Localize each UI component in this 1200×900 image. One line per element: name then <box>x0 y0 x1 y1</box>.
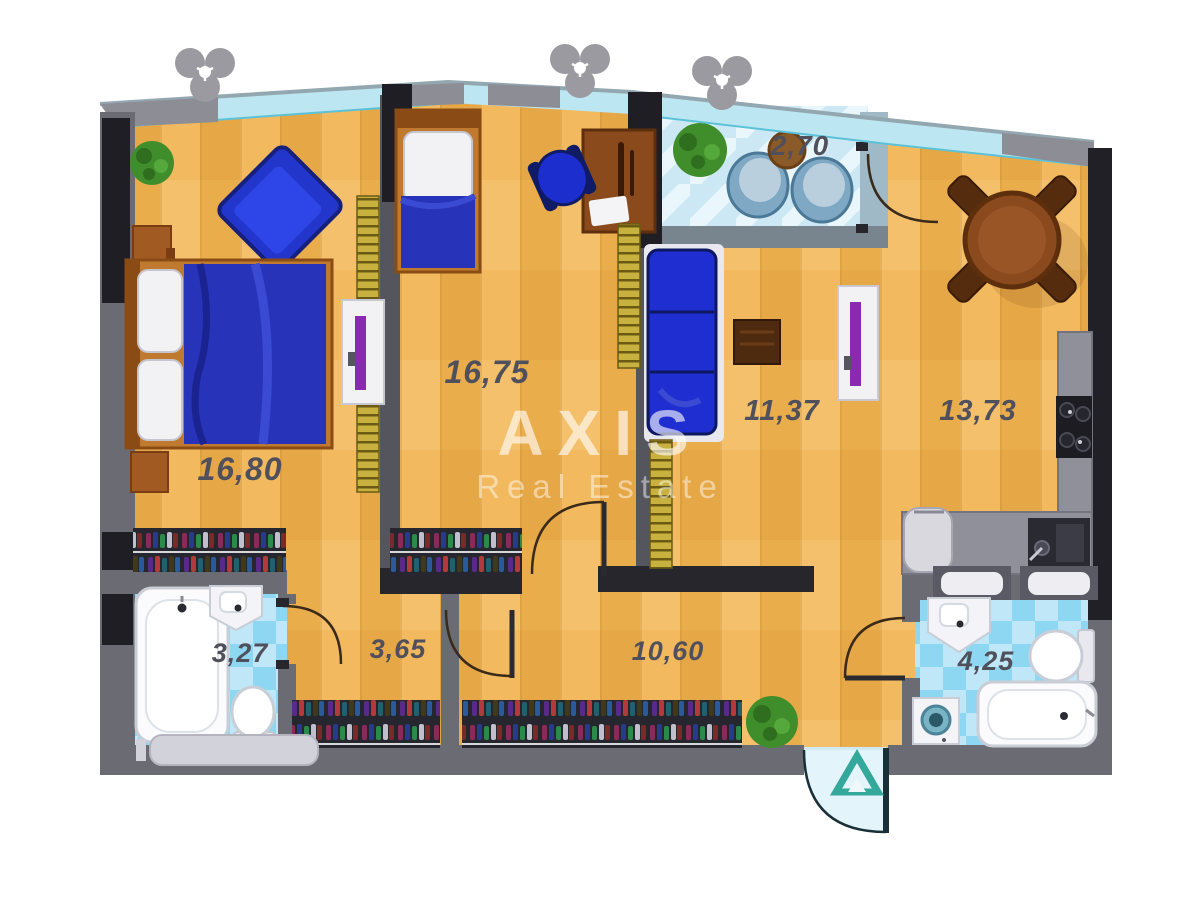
watermark-title: AXIS <box>497 397 702 469</box>
room-label-bathroom-right: 4,25 <box>957 646 1015 676</box>
radiator <box>618 224 640 368</box>
entry-door <box>804 747 886 833</box>
bath-mat <box>150 735 318 765</box>
watermark-subtitle: Real Estate <box>476 468 724 505</box>
tv-screen <box>850 302 861 386</box>
balcony-chair <box>792 158 852 222</box>
nightstand <box>131 452 168 492</box>
tv-screen <box>355 316 366 390</box>
wardrobe <box>133 528 286 572</box>
wall-post <box>488 84 560 108</box>
bottom-wall <box>888 745 1112 775</box>
room-label-bathroom-left: 3,27 <box>212 638 270 668</box>
room-label-hallway: 10,60 <box>632 636 705 666</box>
coffee-table <box>734 320 780 364</box>
radiator <box>357 404 379 492</box>
fridge <box>904 508 952 572</box>
floor-plan-page: 16,80 16,75 11,37 13,73 2,70 3,27 3,65 1… <box>0 0 1200 900</box>
wardrobe <box>462 700 742 748</box>
floor-plan-drawing: 16,80 16,75 11,37 13,73 2,70 3,27 3,65 1… <box>0 0 1200 900</box>
wall-living-bottom <box>598 566 814 592</box>
room-label-bedroom: 16,80 <box>197 451 282 487</box>
stove <box>1056 396 1092 458</box>
toilet <box>1030 630 1094 682</box>
pillow <box>138 360 182 440</box>
radiator <box>357 196 379 300</box>
paper <box>588 195 629 226</box>
room-label-kitchen: 13,73 <box>939 395 1017 427</box>
tv-unit <box>838 286 878 400</box>
room-label-balcony: 2,70 <box>770 130 830 161</box>
tv-unit <box>342 300 384 404</box>
wall-hall-divider <box>441 594 459 748</box>
double-bed <box>126 260 332 448</box>
washing-machine <box>913 698 959 744</box>
single-bed <box>396 110 480 272</box>
wardrobe <box>390 528 522 575</box>
watermark: AXIS Real Estate <box>476 397 724 505</box>
pillow <box>404 132 472 202</box>
kitchen-sink <box>1028 518 1090 568</box>
pillow <box>138 270 182 352</box>
room-label-kids-room: 16,75 <box>444 354 529 390</box>
bathtub <box>978 682 1096 746</box>
fan-icon <box>175 48 235 102</box>
room-label-living: 11,37 <box>744 395 820 427</box>
room-label-hall-small: 3,65 <box>370 634 427 664</box>
